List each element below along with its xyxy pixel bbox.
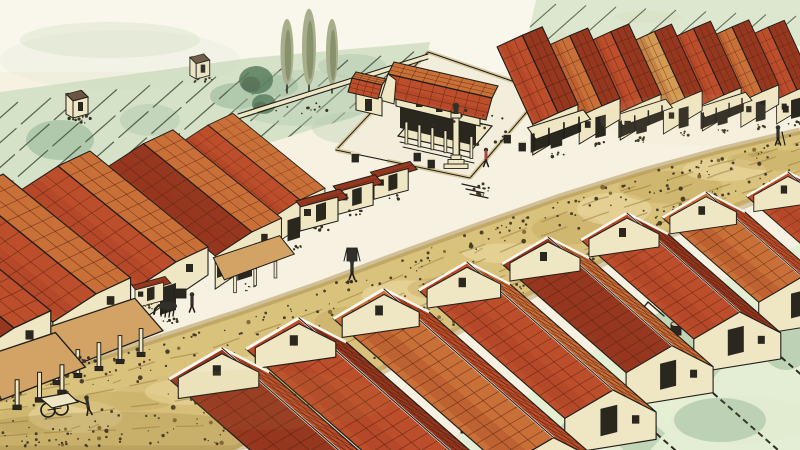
gravel-speckle — [97, 426, 101, 430]
gravel-speckle — [107, 425, 109, 427]
shape — [161, 309, 162, 316]
speckle-dot — [491, 115, 493, 117]
gravel-speckle — [173, 428, 174, 429]
gravel-speckle — [263, 316, 265, 318]
speckle-dot — [82, 116, 84, 118]
gravel-speckle — [525, 217, 526, 218]
speckle-dot — [788, 123, 790, 125]
gravel-speckle — [401, 259, 404, 262]
gravel-speckle — [121, 433, 123, 435]
gravel-speckle — [287, 305, 289, 307]
gravel-speckle — [163, 343, 165, 345]
gravel-speckle — [65, 441, 67, 443]
speckle-dot — [500, 140, 503, 143]
gravel-speckle — [656, 223, 658, 225]
speckle-dot — [348, 209, 351, 212]
speckle-dot — [275, 110, 277, 112]
speckle-dot — [598, 142, 601, 145]
shape — [169, 310, 170, 317]
gravel-speckle — [764, 173, 767, 176]
gravel-speckle — [526, 216, 529, 219]
gravel-speckle — [552, 207, 554, 209]
speckle-dot — [246, 290, 247, 291]
gravel-speckle — [663, 210, 665, 212]
colonnade-column — [60, 365, 64, 393]
gravel-speckle — [104, 429, 108, 433]
gravel-speckle — [480, 231, 484, 235]
column-shaft — [453, 118, 459, 155]
gravel-speckle — [620, 196, 622, 198]
gable-window — [781, 186, 787, 194]
gravel-speckle — [488, 238, 490, 240]
altar-stone — [351, 153, 360, 162]
gravel-speckle — [165, 349, 170, 354]
gravel-speckle — [204, 438, 207, 441]
gravel-speckle — [506, 226, 508, 228]
gravel-speckle — [86, 445, 88, 447]
gravel-speckle — [681, 197, 686, 202]
gable-window — [375, 306, 383, 316]
speckle-dot — [74, 119, 77, 122]
gravel-speckle — [766, 144, 769, 147]
gravel-speckle — [183, 337, 185, 339]
temple-column — [444, 131, 447, 153]
gravel-speckle — [673, 206, 675, 208]
gravel-speckle — [335, 281, 338, 284]
gravel-speckle — [427, 257, 430, 260]
illustration-stage: Bird's-eye watercolour and ink illustrat… — [0, 0, 800, 450]
gravel-speckle — [525, 223, 527, 225]
speckle-dot — [81, 359, 83, 361]
gravel-speckle — [149, 359, 151, 361]
speckle-dot — [464, 109, 467, 112]
gravel-speckle — [679, 187, 683, 191]
gravel-speckle — [427, 251, 430, 254]
gravel-speckle — [239, 333, 241, 335]
gravel-speckle — [227, 344, 229, 346]
gravel-speckle — [422, 283, 424, 285]
gable-window — [540, 252, 547, 261]
speckle-dot — [320, 225, 323, 228]
gravel-speckle — [64, 428, 67, 431]
gravel-speckle — [21, 440, 23, 442]
gravel-speckle — [419, 278, 421, 280]
gravel-speckle — [77, 438, 79, 440]
gravel-speckle — [35, 432, 38, 435]
gravel-speckle — [45, 418, 47, 420]
speckle-dot — [173, 317, 176, 320]
speckle-dot — [551, 155, 554, 158]
speckle-dot — [85, 115, 88, 118]
gable-window — [290, 335, 298, 345]
speckle-dot — [80, 121, 83, 124]
gravel-speckle — [698, 167, 700, 169]
gravel-speckle — [437, 315, 441, 319]
gravel-speckle — [138, 375, 143, 380]
gravel-speckle — [625, 199, 627, 201]
gravel-speckle — [717, 188, 718, 189]
speckle-dot — [301, 113, 303, 115]
speckle-dot — [482, 182, 485, 185]
gravel-speckle — [92, 430, 95, 433]
gravel-speckle — [319, 325, 321, 327]
speckle-dot — [176, 318, 178, 320]
shed-door — [78, 102, 83, 111]
gravel-speckle — [262, 319, 264, 321]
rear-door — [728, 326, 744, 356]
speckle-dot — [148, 306, 151, 309]
shape — [690, 370, 697, 378]
gravel-speckle — [717, 159, 721, 163]
gravel-speckle — [305, 310, 307, 312]
gravel-speckle — [574, 214, 576, 216]
speckle-dot — [482, 114, 484, 116]
gravel-speckle — [331, 313, 334, 316]
gravel-speckle — [515, 283, 518, 286]
shape — [285, 30, 292, 81]
gravel-speckle — [333, 308, 335, 310]
market-crate — [174, 289, 186, 298]
gravel-speckle — [198, 332, 200, 334]
gravel-speckle — [94, 420, 96, 422]
door — [147, 286, 155, 301]
gravel-speckle — [32, 404, 35, 407]
gravel-speckle — [732, 161, 735, 164]
gravel-speckle — [429, 260, 431, 262]
watercolor-blotch — [110, 370, 390, 430]
speckle-dot — [295, 246, 297, 248]
gravel-speckle — [255, 316, 257, 318]
shape — [352, 153, 359, 162]
gravel-speckle — [420, 259, 423, 262]
gravel-speckle — [143, 361, 145, 363]
gravel-speckle — [509, 222, 512, 225]
speckle-dot — [325, 109, 328, 112]
gravel-speckle — [519, 286, 521, 288]
gravel-speckle — [290, 308, 292, 310]
speckle-dot — [176, 320, 179, 323]
gravel-speckle — [291, 311, 292, 312]
speckle-dot — [450, 110, 451, 111]
gravel-speckle — [609, 192, 612, 195]
speckle-dot — [453, 120, 456, 123]
colonnade-column — [38, 372, 42, 400]
speckle-dot — [87, 356, 90, 359]
gravel-speckle — [666, 184, 669, 187]
speckle-dot — [397, 197, 400, 200]
gravel-speckle — [496, 227, 498, 229]
gravel-speckle — [649, 191, 651, 193]
gravel-speckle — [727, 193, 730, 196]
speckle-dot — [551, 153, 553, 155]
gravel-speckle — [519, 227, 521, 229]
gravel-speckle — [695, 166, 697, 168]
speckle-dot — [396, 194, 399, 197]
speckle-dot — [255, 286, 256, 287]
watercolor-blotch — [0, 30, 240, 90]
gravel-speckle — [501, 225, 502, 226]
gravel-speckle — [65, 443, 68, 446]
speckle-dot — [318, 106, 320, 108]
speckle-dot — [482, 187, 484, 189]
gravel-speckle — [165, 365, 167, 367]
gravel-speckle — [667, 187, 670, 190]
gravel-speckle — [219, 441, 223, 445]
gravel-speckle — [681, 171, 684, 174]
speckle-dot — [299, 245, 301, 247]
gravel-speckle — [577, 227, 580, 230]
gravel-speckle — [654, 192, 655, 193]
speckle-dot — [563, 154, 565, 156]
gravel-speckle — [138, 363, 141, 366]
gravel-speckle — [504, 240, 506, 242]
speckle-dot — [315, 102, 317, 104]
gravel-speckle — [557, 202, 558, 203]
gravel-speckle — [708, 174, 709, 175]
shape — [74, 373, 82, 377]
colonnade-column — [97, 343, 101, 369]
gravel-speckle — [522, 230, 526, 234]
gravel-speckle — [389, 277, 392, 280]
shape — [632, 415, 639, 423]
gravel-speckle — [70, 433, 72, 435]
speckle-dot — [355, 213, 357, 215]
gravel-speckle — [570, 212, 573, 215]
gravel-speckle — [109, 371, 111, 373]
gravel-speckle — [707, 171, 708, 172]
shape — [304, 209, 311, 216]
speckle-dot — [480, 194, 482, 196]
gravel-speckle — [38, 441, 40, 443]
gravel-speckle — [558, 224, 561, 227]
speckle-dot — [310, 109, 311, 110]
shape — [428, 159, 435, 168]
gravel-speckle — [128, 352, 130, 354]
speckle-dot — [143, 305, 144, 306]
gravel-speckle — [110, 410, 113, 413]
gravel-speckle — [323, 290, 326, 293]
speckle-dot — [501, 117, 503, 119]
tree-canopy — [239, 66, 273, 94]
shed-door — [365, 99, 372, 111]
gravel-speckle — [574, 200, 577, 203]
speckle-dot — [307, 106, 310, 109]
gravel-speckle — [463, 234, 466, 237]
gravel-speckle — [763, 147, 765, 149]
gravel-speckle — [667, 180, 668, 181]
gravel-speckle — [415, 261, 417, 263]
gravel-speckle — [113, 359, 115, 361]
gravel-speckle — [292, 316, 294, 318]
gravel-speckle — [758, 153, 760, 155]
gravel-speckle — [721, 194, 724, 197]
gravel-speckle — [35, 438, 38, 441]
gravel-speckle — [48, 439, 50, 441]
door — [352, 187, 362, 206]
speckle-dot — [88, 362, 90, 364]
shape — [414, 152, 421, 161]
gravel-speckle — [6, 445, 8, 447]
gravel-speckle — [752, 148, 756, 152]
gravel-speckle — [58, 444, 60, 446]
speckle-dot — [349, 214, 352, 217]
speckle-dot — [93, 359, 96, 362]
gravel-speckle — [578, 201, 580, 203]
temple-column — [418, 125, 421, 147]
gravel-speckle — [600, 185, 605, 190]
speckle-dot — [84, 122, 85, 123]
gravel-speckle — [583, 197, 585, 199]
gravel-speckle — [499, 231, 501, 233]
gravel-speckle — [659, 190, 662, 193]
gravel-speckle — [789, 135, 791, 137]
gable-window — [619, 228, 626, 237]
gravel-speckle — [194, 334, 197, 337]
gravel-speckle — [544, 217, 546, 219]
gravel-speckle — [796, 143, 799, 146]
speckle-dot — [502, 136, 504, 138]
rear-door — [600, 405, 617, 437]
speckle-dot — [350, 280, 353, 283]
gravel-speckle — [257, 333, 259, 335]
gravel-speckle — [98, 444, 101, 447]
porch-post — [254, 269, 257, 286]
shape — [758, 336, 765, 344]
speckle-dot — [89, 117, 92, 120]
gravel-speckle — [93, 384, 94, 385]
speckle-dot — [359, 210, 361, 212]
speckle-dot — [347, 280, 350, 283]
gravel-speckle — [105, 373, 108, 376]
gravel-speckle — [208, 440, 209, 441]
speckle-dot — [151, 304, 152, 305]
speckle-dot — [504, 130, 507, 133]
speckle-dot — [78, 356, 81, 359]
gravel-speckle — [672, 173, 674, 175]
gravel-speckle — [431, 247, 432, 248]
speckle-dot — [253, 286, 255, 288]
gravel-speckle — [148, 430, 149, 431]
gravel-speckle — [656, 208, 659, 211]
gravel-speckle — [97, 436, 101, 440]
gravel-speckle — [378, 282, 381, 285]
gravel-speckle — [150, 370, 151, 371]
gravel-speckle — [12, 420, 14, 422]
door — [388, 173, 397, 191]
speckle-dot — [494, 140, 497, 143]
door — [791, 98, 800, 119]
speckle-dot — [389, 197, 391, 199]
shape — [137, 352, 145, 356]
gravel-speckle — [190, 336, 192, 338]
gravel-speckle — [757, 162, 761, 166]
gravel-speckle — [657, 169, 660, 172]
shape — [448, 160, 464, 165]
altar-stone — [427, 159, 436, 168]
shape — [165, 310, 166, 317]
gravel-speckle — [316, 310, 319, 313]
gravel-speckle — [193, 354, 196, 357]
shape — [138, 292, 143, 297]
gable-window — [459, 278, 466, 287]
gravel-speckle — [157, 441, 159, 443]
gravel-speckle — [443, 250, 446, 253]
speckle-dot — [557, 151, 559, 153]
colonnade-column — [139, 329, 143, 355]
gravel-speckle — [223, 430, 224, 431]
watercolor-blotch — [600, 94, 780, 146]
speckle-dot — [327, 229, 329, 231]
colonnade-column — [118, 336, 122, 362]
gravel-speckle — [788, 169, 790, 171]
speckle-dot — [6, 400, 8, 402]
gravel-speckle — [469, 244, 474, 249]
speckle-dot — [794, 124, 796, 126]
gravel-speckle — [2, 431, 5, 434]
gravel-speckle — [61, 442, 63, 444]
speckle-dot — [487, 190, 488, 191]
gravel-speckle — [735, 190, 736, 191]
gravel-speckle — [149, 442, 152, 445]
speckle-dot — [476, 143, 479, 146]
gravel-speckle — [766, 156, 768, 158]
speckle-dot — [473, 188, 476, 191]
gravel-speckle — [592, 257, 595, 260]
shape — [95, 366, 103, 370]
speckle-dot — [314, 226, 317, 229]
gravel-speckle — [366, 280, 367, 281]
speckle-dot — [388, 194, 390, 196]
gravel-speckle — [748, 181, 751, 184]
shape — [585, 121, 591, 128]
temple-column — [431, 128, 434, 150]
gravel-speckle — [589, 204, 592, 207]
altar-stone — [503, 134, 512, 143]
shape — [504, 134, 511, 143]
crate — [783, 106, 788, 112]
gravel-speckle — [167, 432, 169, 434]
shape — [330, 30, 336, 81]
gravel-speckle — [522, 285, 524, 287]
gravel-speckle — [119, 437, 122, 440]
gravel-speckle — [4, 435, 5, 436]
speckle-dot — [67, 117, 70, 120]
gravel-speckle — [88, 439, 90, 441]
gravel-speckle — [701, 160, 703, 162]
rear-door — [791, 290, 800, 319]
gravel-speckle — [655, 217, 657, 219]
gravel-speckle — [508, 229, 510, 231]
temple-column — [405, 122, 408, 144]
temple-column — [470, 137, 473, 159]
watercolor-roman-vicus-illustration: Bird's-eye watercolour and ink illustrat… — [0, 0, 800, 450]
gravel-speckle — [140, 367, 142, 369]
gravel-speckle — [224, 330, 226, 332]
gravel-speckle — [328, 310, 332, 314]
gravel-speckle — [66, 432, 69, 435]
gravel-speckle — [216, 442, 219, 445]
gravel-speckle — [28, 427, 30, 429]
speckle-dot — [171, 322, 173, 324]
gravel-speckle — [421, 266, 422, 267]
gravel-speckle — [428, 309, 429, 310]
speckle-dot — [77, 117, 80, 120]
speckle-dot — [151, 308, 152, 309]
gravel-speckle — [521, 239, 526, 244]
gravel-speckle — [689, 169, 692, 172]
door — [288, 216, 300, 241]
speckle-dot — [359, 213, 361, 215]
